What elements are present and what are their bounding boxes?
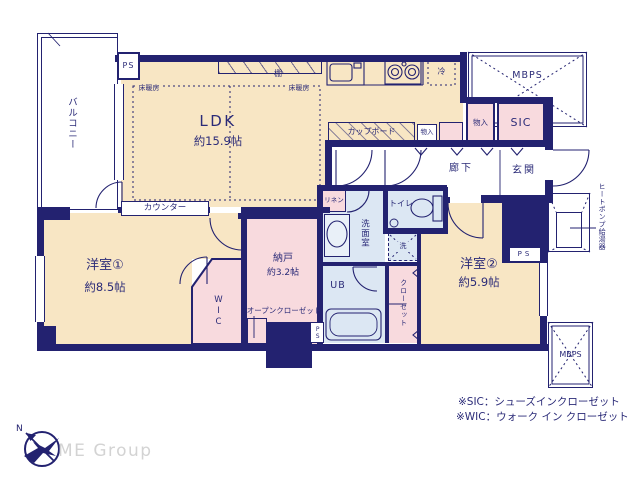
door-opening [210,207,241,213]
room-bedroom2-closet [388,265,418,343]
heatpump-inner [556,212,582,248]
open-closet-box [247,318,267,344]
note-sic: ※SIC：シューズインクローゼット [458,396,630,409]
heatpump-label: ヒートポンプ給湯器 [595,167,608,267]
room-unitbath [322,265,385,343]
room-bedroom1-lower [44,255,192,345]
wall [37,326,56,346]
ps-storage-box [310,322,324,343]
counter-box [121,201,209,216]
room-wic [192,259,242,344]
room-bedroom2-entry [448,203,508,232]
window-ldk-balcony [114,84,124,180]
wall [460,52,467,103]
window-bedroom2 [539,263,548,316]
compass-icon: N [12,418,76,478]
storage-b-box [417,124,437,141]
wall [443,197,450,203]
window-bedroom1 [35,256,45,322]
wic-label: WIC [211,289,225,333]
wall [266,322,312,368]
wall [545,140,553,150]
note-wic: ※WIC：ウォーク イン クローゼット [456,411,634,424]
wall [238,213,320,219]
wall [115,55,467,62]
wall [320,262,420,266]
room-toilet [388,190,443,230]
wall [325,140,332,190]
sic-box [497,102,545,143]
wall [241,213,247,345]
mbps-bottom-box [548,322,593,388]
ps-top-box [117,52,140,80]
wall [417,230,421,344]
hallway-label: 廊下 [436,163,486,175]
ps-entrance-box [509,247,541,262]
vanity-box [324,214,350,257]
wall [37,207,70,220]
watermark: ME Group [58,440,168,464]
laundry-box [388,233,418,261]
compass-north-label: N [16,424,23,434]
wall [325,140,553,147]
floorplan: バルコニー PS 棚 床暖房 床暖房 LDK 約15.9帖 冷 MBPS カップ… [0,0,640,480]
wall [443,187,448,233]
wall [383,228,448,234]
wall [385,265,389,343]
wall [383,188,388,230]
room-ldk [121,60,327,208]
room-entrance [500,147,548,195]
storage-a-box [466,102,495,143]
wall [545,180,553,197]
room-bedroom1 [44,213,242,259]
wall [460,97,552,103]
balcony-rail [41,37,118,210]
